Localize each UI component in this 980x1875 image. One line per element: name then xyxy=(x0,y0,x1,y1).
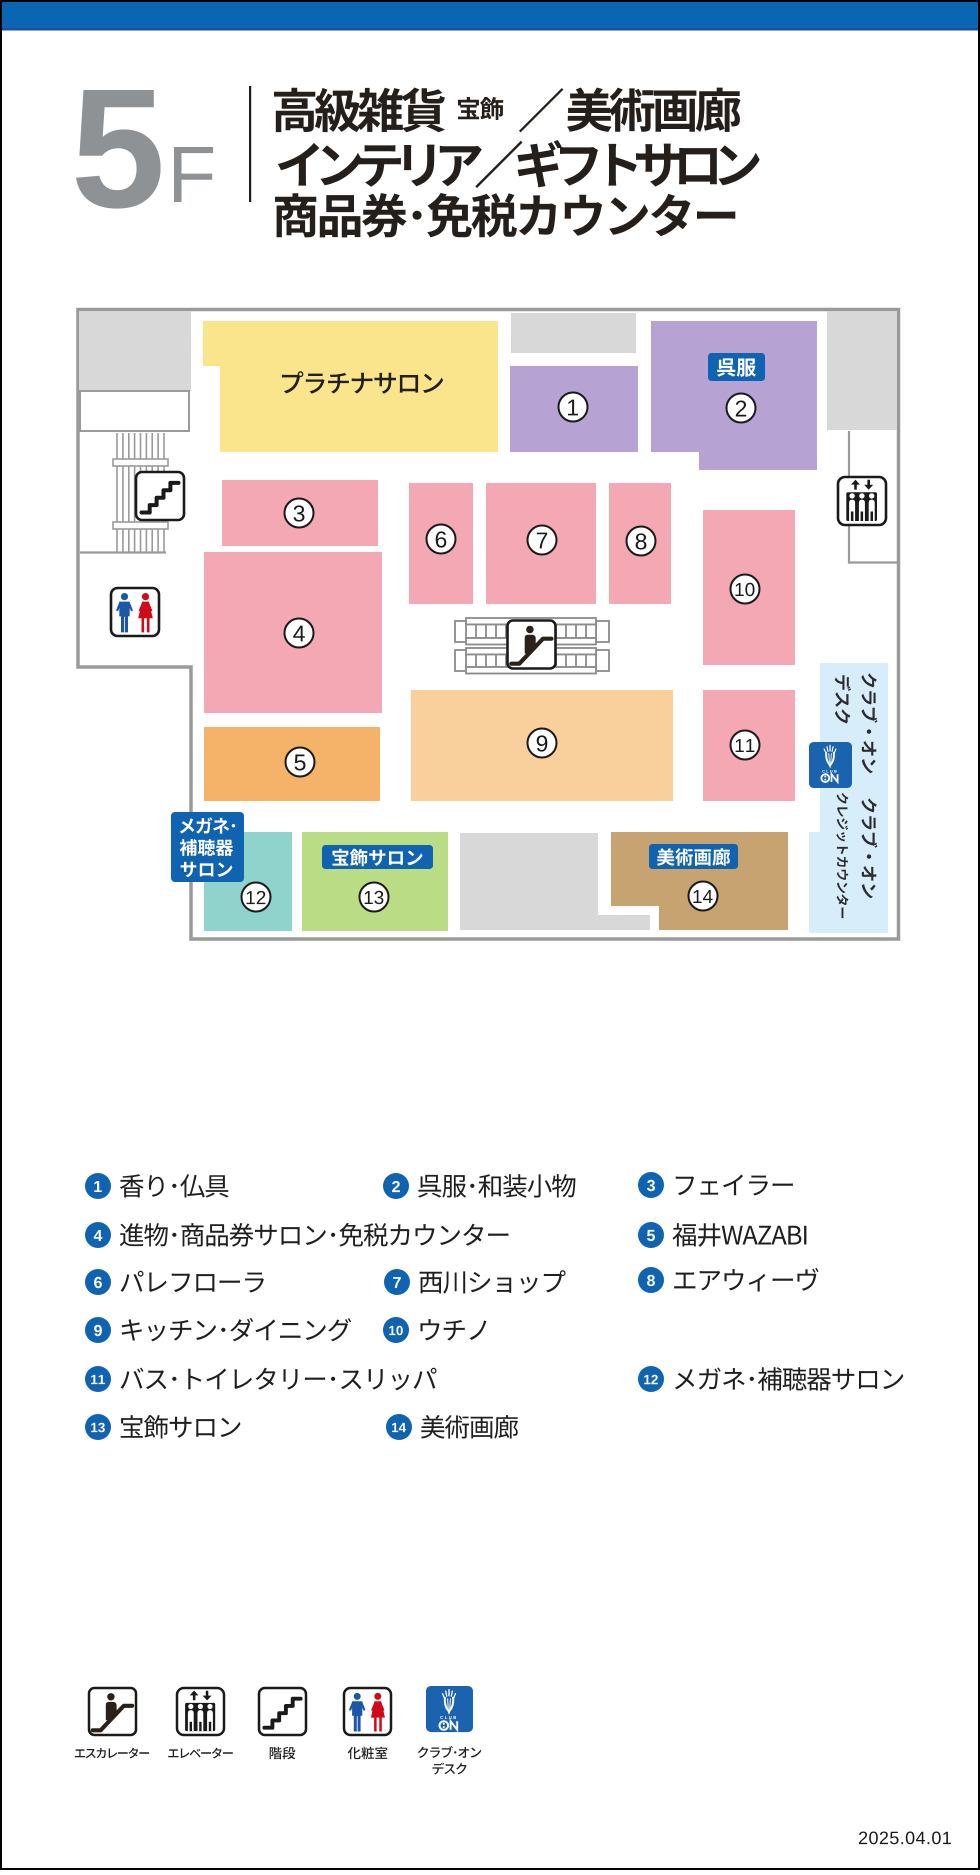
svg-text:CLUB: CLUB xyxy=(822,768,838,773)
svg-text:CLUB: CLUB xyxy=(440,1715,458,1720)
